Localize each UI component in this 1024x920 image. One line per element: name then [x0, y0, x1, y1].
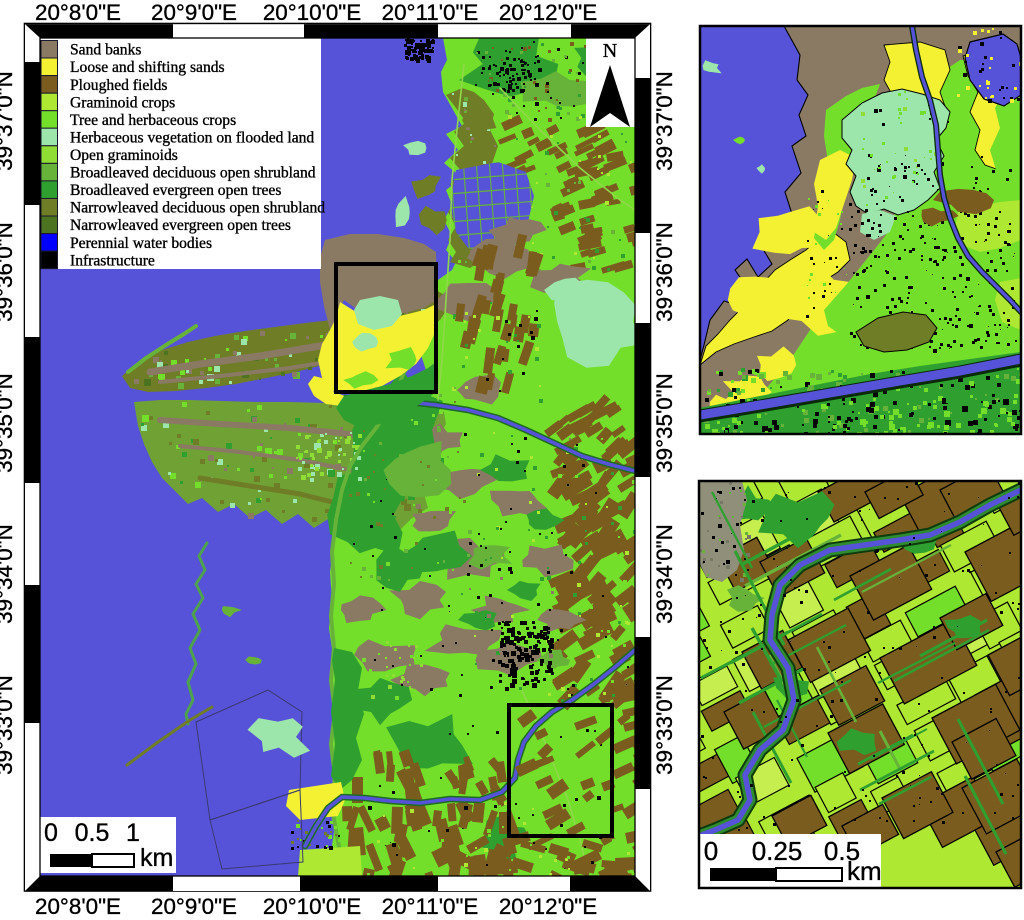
svg-text:39°35'0"N: 39°35'0"N	[652, 373, 677, 473]
svg-text:39°36'0"N: 39°36'0"N	[0, 222, 17, 322]
svg-text:39°33'0"N: 39°33'0"N	[0, 675, 17, 775]
svg-text:Infrastructure: Infrastructure	[70, 252, 155, 269]
svg-text:39°37'0"N: 39°37'0"N	[0, 71, 17, 171]
svg-text:20°11'0"E: 20°11'0"E	[382, 0, 479, 25]
svg-text:Perennial water bodies: Perennial water bodies	[70, 235, 212, 252]
svg-text:Broadleaved evergreen open tre: Broadleaved evergreen open trees	[70, 182, 281, 199]
svg-text:Narrowleaved evergreen open tr: Narrowleaved evergreen open trees	[70, 217, 291, 234]
svg-text:Tree and herbaceous crops: Tree and herbaceous crops	[70, 112, 236, 129]
svg-text:0: 0	[44, 819, 58, 847]
svg-text:20°12'0"E: 20°12'0"E	[499, 0, 597, 25]
svg-text:20°8'0"E: 20°8'0"E	[35, 894, 121, 915]
svg-text:20°9'0"E: 20°9'0"E	[151, 0, 237, 25]
svg-text:20°12'0"E: 20°12'0"E	[499, 894, 597, 915]
svg-text:Broadleaved deciduous open shr: Broadleaved deciduous open shrubland	[70, 165, 316, 182]
svg-text:20°10'0"E: 20°10'0"E	[263, 0, 361, 25]
svg-text:20°10'0"E: 20°10'0"E	[263, 894, 361, 915]
svg-text:0: 0	[704, 836, 718, 866]
svg-text:0.5: 0.5	[75, 819, 110, 847]
svg-text:Graminoid crops: Graminoid crops	[70, 94, 175, 111]
svg-text:1: 1	[126, 819, 140, 847]
svg-text:km: km	[140, 844, 173, 872]
svg-text:39°35'0"N: 39°35'0"N	[0, 373, 17, 473]
svg-text:km: km	[847, 856, 882, 886]
svg-text:N: N	[603, 40, 617, 62]
svg-text:Herbaceous vegetation on flood: Herbaceous vegetation on flooded land	[70, 129, 314, 146]
svg-text:20°11'0"E: 20°11'0"E	[382, 894, 479, 915]
svg-text:20°8'0"E: 20°8'0"E	[35, 0, 121, 25]
svg-text:Open graminoids: Open graminoids	[70, 147, 178, 164]
svg-text:Loose and shifting sands: Loose and shifting sands	[70, 59, 225, 76]
svg-text:0.25: 0.25	[752, 836, 803, 866]
svg-text:20°9'0"E: 20°9'0"E	[151, 894, 237, 915]
svg-text:39°33'0"N: 39°33'0"N	[652, 675, 677, 775]
svg-text:39°34'0"N: 39°34'0"N	[652, 524, 677, 624]
svg-text:39°36'0"N: 39°36'0"N	[652, 222, 677, 322]
svg-text:Narrowleaved deciduous open sh: Narrowleaved deciduous open shrubland	[70, 200, 325, 217]
svg-text:Ploughed fields: Ploughed fields	[70, 77, 167, 94]
svg-text:39°34'0"N: 39°34'0"N	[0, 524, 17, 624]
svg-text:39°37'0"N: 39°37'0"N	[652, 71, 677, 171]
svg-text:Sand banks: Sand banks	[70, 42, 141, 59]
